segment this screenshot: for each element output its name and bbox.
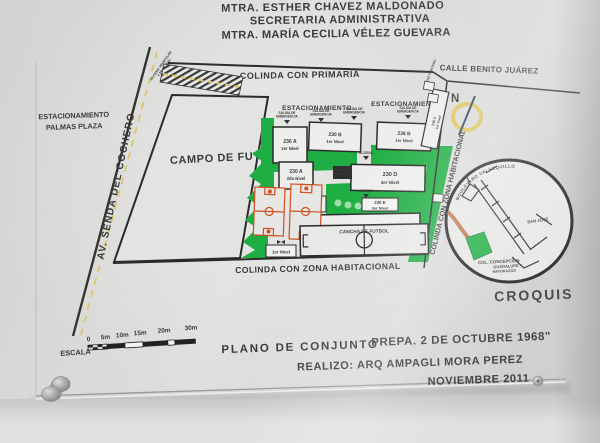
- svg-text:230 D: 230 D: [383, 172, 398, 178]
- cancha-label: CANCHA DE FUTBOL: [339, 228, 389, 235]
- entrance-hatch-band: [160, 64, 243, 95]
- compass: N: [451, 93, 481, 135]
- date-label: NOVIEMBRE 2011: [427, 372, 529, 388]
- svg-text:30m: 30m: [184, 324, 198, 332]
- svg-text:236 A: 236 A: [283, 139, 297, 145]
- svg-text:SALIDA DEEMERGENCIA: SALIDA DEEMERGENCIA: [310, 109, 332, 117]
- svg-text:230 E: 230 E: [374, 200, 386, 205]
- svg-text:ACCESO: ACCESO: [359, 151, 374, 155]
- building-230D: [351, 164, 425, 191]
- svg-text:3er Nivel: 3er Nivel: [372, 206, 389, 211]
- svg-text:SALIDA DEEMERGENCIA: SALIDA DEEMERGENCIA: [343, 107, 365, 115]
- west-surroundings: ESTACIONAMIENTO PALMAS PLAZA: [38, 110, 110, 132]
- plaque-header: MTRA. ESTHER CHAVEZ MALDONADO SECRETARIA…: [221, 0, 451, 42]
- plaque-footer: PLANO DE CONJUNTO PREPA. 2 DE OCTUBRE 19…: [221, 331, 553, 395]
- croquis-title: CROQUIS: [494, 286, 574, 305]
- header-line2: SECRETARIA ADMINISTRATIVA: [250, 13, 431, 28]
- svg-text:1er Nivel: 1er Nivel: [272, 250, 290, 255]
- exit-box-230D: SALIDA DEEMERGENCIA: [333, 166, 354, 179]
- svg-text:1er Nivel: 1er Nivel: [326, 139, 344, 145]
- svg-text:3er Nivel: 3er Nivel: [381, 180, 400, 185]
- plan-title: PLANO DE CONJUNTO: [221, 339, 379, 356]
- site-plan-svg: MTRA. ESTHER CHAVEZ MALDONADO SECRETARIA…: [0, 0, 600, 443]
- croquis-inset: BOULEVARD VALSEQUILLO SAN JOSÉ COL. CONC…: [446, 160, 572, 282]
- building-236A: [273, 127, 307, 163]
- parking-palmas-label2: PALMAS PLAZA: [46, 121, 104, 132]
- football-field: [114, 95, 268, 262]
- colinda-sur-label: COLINDA CON ZONA HABITACIONAL: [235, 261, 401, 275]
- colinda-primaria-label: COLINDA CON PRIMARIA: [240, 69, 360, 81]
- edge-structure-1: [423, 81, 434, 91]
- svg-text:ACCESO: ACCESO: [359, 189, 374, 193]
- svg-text:1er Nivel: 1er Nivel: [281, 146, 298, 151]
- author-credit: REALIZO: ARQ AMPAGLI MORA PEREZ: [297, 354, 523, 374]
- svg-text:10m: 10m: [116, 332, 130, 340]
- svg-text:2do Nivel: 2do Nivel: [287, 176, 306, 181]
- screw-bottom-right: [533, 376, 543, 386]
- school-name: PREPA. 2 DE OCTUBRE 1968": [371, 331, 551, 349]
- calle-benito-juarez-label: CALLE BENITO JUÁREZ: [440, 63, 539, 75]
- svg-text:20m: 20m: [158, 327, 172, 335]
- label-box-230E: 230 E 3er Nivel: [362, 198, 398, 211]
- scale-bar: ESCALA 0 5m 10m 15m 20m 30m: [59, 324, 199, 357]
- svg-text:SALIDA DEEMERGENCIA: SALIDA DEEMERGENCIA: [333, 168, 354, 175]
- basketball-court-1: [253, 187, 285, 236]
- svg-text:0: 0: [87, 336, 91, 343]
- svg-text:SALIDA DEEMERGENCIA: SALIDA DEEMERGENCIA: [276, 111, 298, 119]
- parking-palmas-label: ESTACIONAMIENTO: [38, 110, 109, 121]
- cancha-futbol: CANCHA DE FUTBOL: [300, 224, 429, 256]
- compass-n-label: N: [451, 93, 459, 105]
- svg-text:230 A: 230 A: [289, 169, 303, 175]
- svg-text:230 B: 230 B: [328, 132, 342, 138]
- header-line3: MTRA. MARÍA CECILIA VÉLEZ GUEVARA: [222, 26, 451, 42]
- svg-text:236 B: 236 B: [397, 131, 411, 137]
- edge-structure-2: [427, 93, 438, 103]
- level-box: 1er Nivel: [266, 240, 296, 257]
- svg-text:15m: 15m: [134, 330, 148, 338]
- svg-text:5m: 5m: [101, 334, 111, 342]
- svg-text:1er Nivel: 1er Nivel: [395, 138, 413, 144]
- scale-label: ESCALA: [60, 347, 92, 358]
- svg-text:SALIDA DEEMERGENCIA: SALIDA DEEMERGENCIA: [397, 106, 419, 114]
